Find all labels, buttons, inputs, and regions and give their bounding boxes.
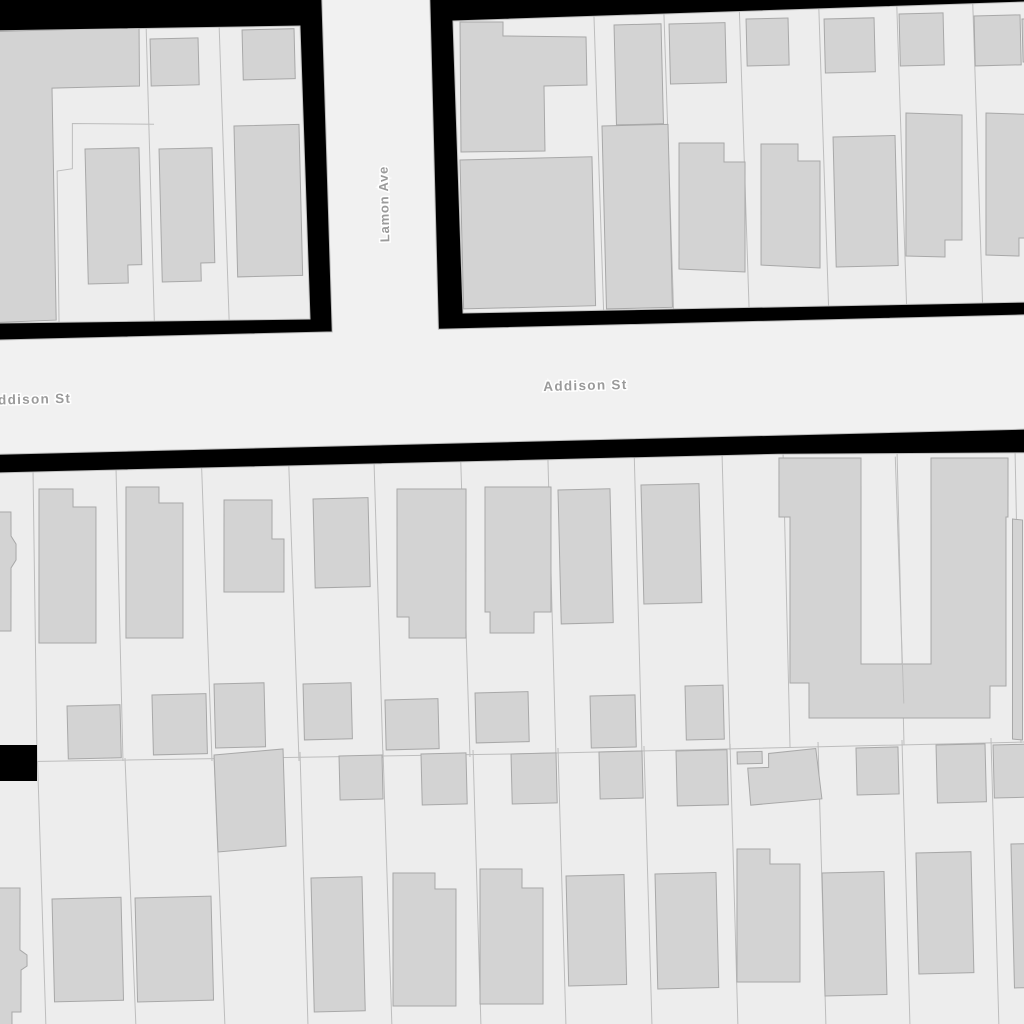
- svg-text:Lamon Ave: Lamon Ave: [376, 166, 393, 243]
- svg-text:Addison St: Addison St: [0, 391, 71, 408]
- svg-text:Addison St: Addison St: [543, 377, 628, 394]
